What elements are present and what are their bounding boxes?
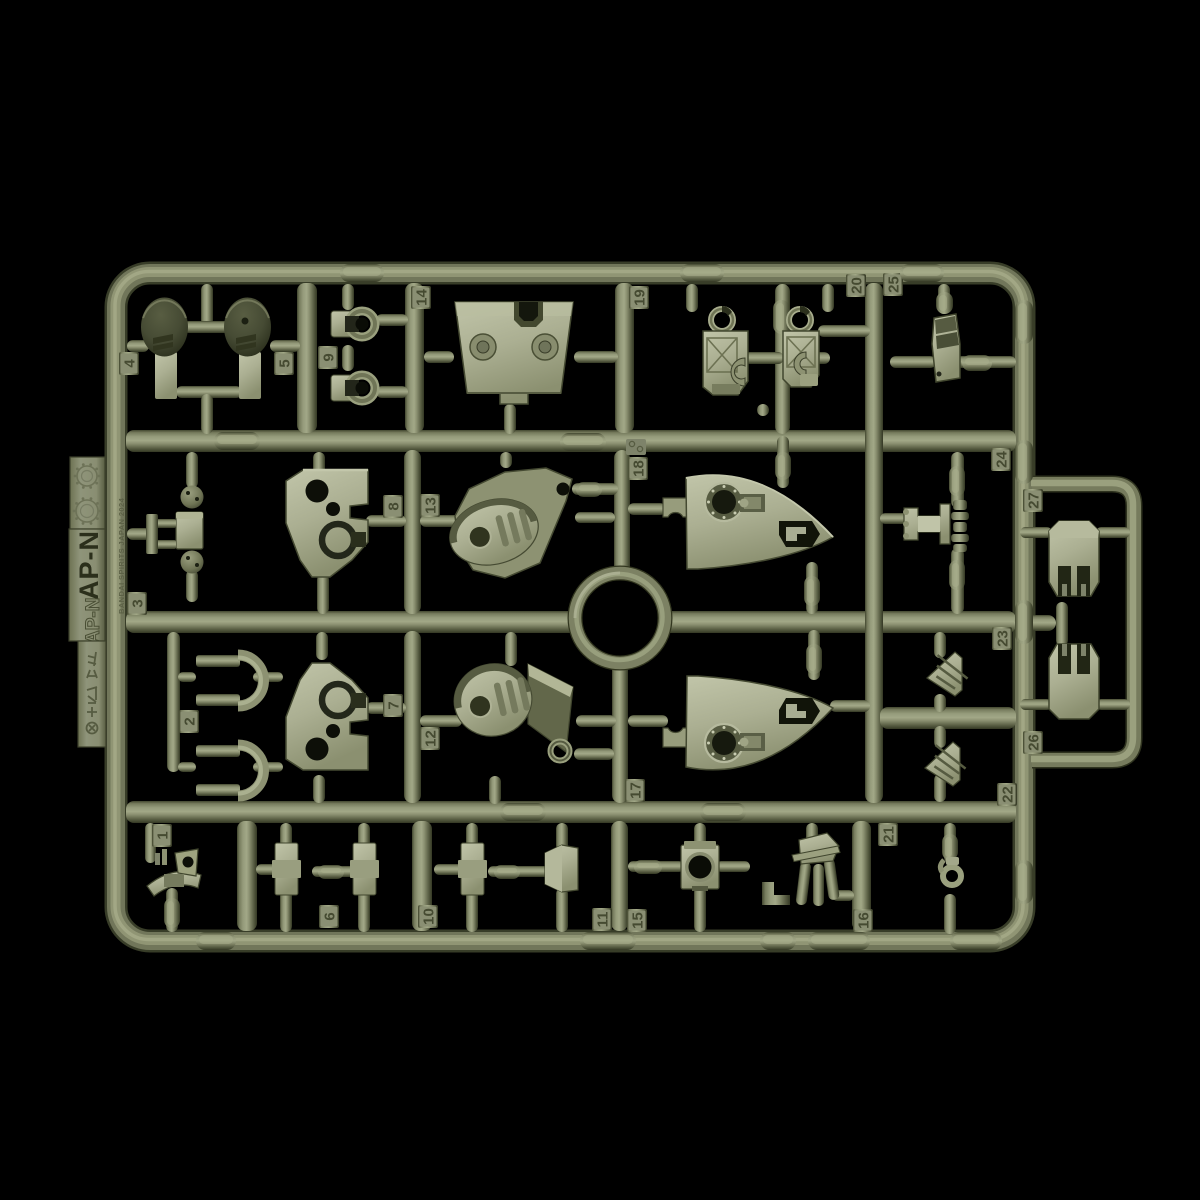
svg-text:22: 22 (1000, 786, 1017, 803)
svg-text:BANDAI SPIRITS JAPAN 2024: BANDAI SPIRITS JAPAN 2024 (117, 497, 126, 614)
svg-text:12: 12 (423, 730, 440, 747)
svg-text:AP-N: AP-N (74, 530, 104, 600)
svg-text:4: 4 (122, 359, 139, 368)
svg-text:AP-N: AP-N (83, 598, 104, 644)
svg-text:21: 21 (881, 826, 898, 843)
svg-text:13: 13 (423, 497, 440, 514)
svg-text:16: 16 (856, 912, 873, 929)
svg-text:17: 17 (628, 782, 645, 799)
svg-text:6: 6 (322, 912, 339, 920)
svg-text:2: 2 (182, 717, 199, 725)
svg-text:14: 14 (414, 289, 431, 306)
svg-text:19: 19 (632, 289, 649, 306)
svg-text:5: 5 (277, 359, 294, 367)
svg-text:15: 15 (630, 912, 647, 929)
svg-text:3: 3 (130, 599, 147, 607)
svg-text:23: 23 (995, 630, 1012, 647)
svg-text:11: 11 (595, 912, 612, 928)
svg-text:24: 24 (994, 451, 1011, 468)
svg-text:18: 18 (631, 460, 648, 477)
svg-text:20: 20 (849, 277, 866, 294)
svg-text:7: 7 (386, 701, 403, 709)
svg-text:1: 1 (155, 831, 172, 839)
svg-text:9: 9 (321, 353, 338, 361)
svg-text:25: 25 (886, 276, 903, 293)
svg-text:10: 10 (421, 908, 438, 925)
svg-text:8: 8 (386, 502, 403, 510)
svg-text:27: 27 (1026, 492, 1043, 509)
svg-text:26: 26 (1026, 734, 1043, 751)
